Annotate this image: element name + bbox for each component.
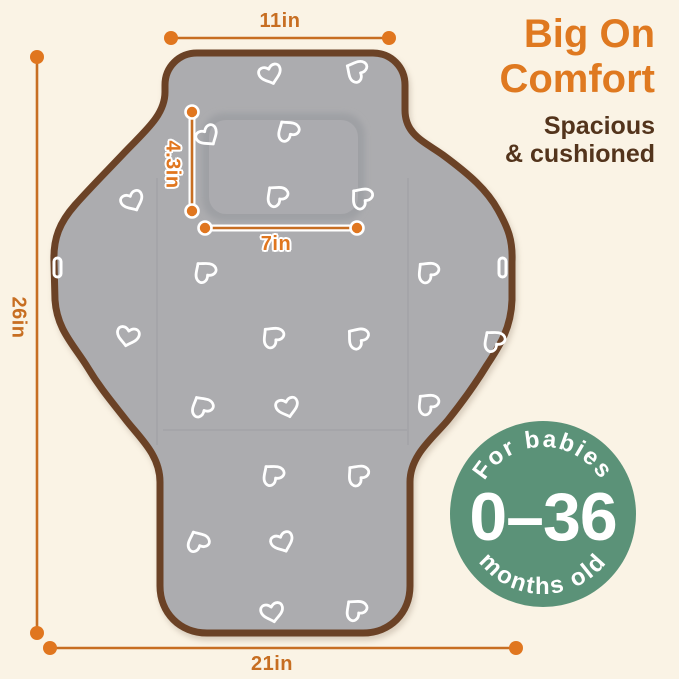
top-width-label: 11in xyxy=(250,10,310,33)
headline-line1: Big On xyxy=(499,12,655,57)
headline-block: Big On Comfort Spacious & cushioned xyxy=(499,12,655,168)
subheadline-line2: & cushioned xyxy=(499,140,655,168)
left-height-label: 26in xyxy=(7,288,30,348)
age-range-badge: For babies 0–36 months old xyxy=(450,421,636,607)
dim-line-left-height xyxy=(30,50,44,640)
subheadline-line1: Spacious xyxy=(499,112,655,140)
pillow-area xyxy=(202,113,365,221)
pillow-height-label: 4.3in xyxy=(161,133,184,197)
headline-line2: Comfort xyxy=(499,57,655,102)
pillow-width-label: 7in xyxy=(246,233,306,256)
infographic-canvas: For babies 0–36 months old 11in 26in 21i… xyxy=(0,0,679,679)
bottom-width-label: 21in xyxy=(242,653,302,676)
badge-value-text: 0–36 xyxy=(469,479,616,555)
dim-line-top-width xyxy=(164,31,396,45)
